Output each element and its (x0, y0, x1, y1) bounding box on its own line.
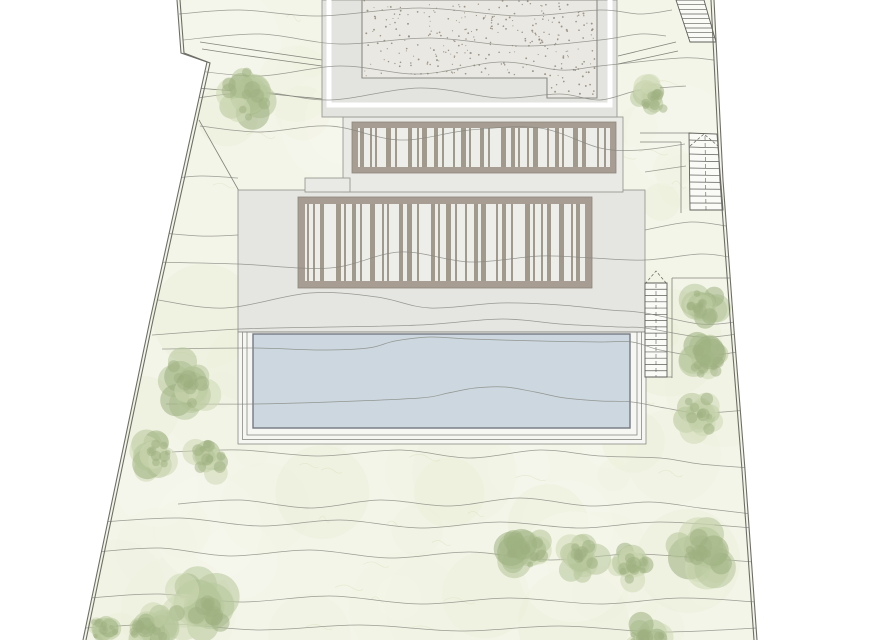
gravel-dot (377, 42, 379, 44)
gravel-dot (553, 17, 555, 19)
gravel-dot (433, 49, 435, 51)
ground-texture-blob (598, 459, 631, 492)
gravel-dot (461, 17, 462, 18)
gravel-dot (386, 19, 387, 20)
gravel-dot (399, 34, 401, 36)
tree-canopy-speckle (242, 90, 252, 100)
tree-canopy-speckle (242, 68, 252, 78)
gravel-dot (557, 38, 558, 39)
gravel-dot (427, 63, 429, 65)
gravel-dot (593, 90, 595, 92)
gravel-dot (504, 64, 506, 66)
tree-canopy-speckle (258, 98, 270, 110)
gravel-dot (471, 31, 472, 32)
gravel-dot (491, 18, 492, 19)
gravel-dot (541, 40, 543, 42)
terrace-step (305, 178, 350, 192)
gravel-dot (406, 48, 408, 50)
gravel-dot (454, 72, 455, 73)
gravel-dot (568, 39, 570, 41)
gravel-dot (518, 0, 519, 1)
gravel-dot (452, 30, 453, 31)
tree-canopy-speckle (625, 574, 634, 583)
gravel-dot (583, 13, 585, 15)
gravel-dot (434, 12, 435, 13)
pergola-slat (502, 204, 506, 281)
gravel-dot (592, 93, 594, 95)
tree-canopy-speckle (109, 625, 114, 630)
gravel-dot (447, 18, 449, 20)
gravel-dot (533, 60, 535, 62)
gravel-dot (407, 14, 408, 15)
gravel-dot (435, 54, 436, 55)
gravel-dot (464, 6, 466, 8)
gravel-dot (586, 71, 587, 72)
tree-canopy-speckle (586, 557, 597, 568)
gravel-dot (481, 71, 483, 73)
tree-canopy-speckle (96, 619, 101, 624)
gravel-dot (494, 16, 495, 17)
gravel-dot (388, 61, 389, 62)
pergola-slat (344, 204, 346, 281)
gravel-dot (554, 91, 556, 93)
tree-canopy-speckle (245, 114, 252, 121)
gravel-dot (578, 29, 580, 31)
tree-canopy-speckle (527, 562, 533, 568)
pergola-slat (582, 128, 586, 167)
gravel-dot (525, 40, 527, 42)
gravel-dot (535, 34, 537, 36)
gravel-dot (582, 37, 584, 39)
gravel-dot (544, 73, 546, 75)
gravel-dot (503, 25, 505, 27)
gravel-dot (391, 42, 393, 44)
gravel-dot (406, 50, 407, 51)
gravel-dot (561, 26, 563, 28)
gravel-dot (527, 0, 529, 2)
gravel-dot (522, 66, 523, 67)
tree-canopy-speckle (694, 290, 701, 297)
gravel-dot (400, 61, 402, 63)
gravel-dot (443, 51, 444, 52)
pergola-slat (417, 204, 419, 281)
gravel-dot (578, 49, 579, 50)
tree-canopy-speckle (699, 300, 705, 306)
gravel-dot (473, 36, 474, 37)
gravel-dot (583, 24, 585, 26)
gravel-dot (559, 35, 560, 36)
tree-canopy-speckle (631, 632, 636, 637)
gravel-dot (413, 56, 414, 57)
gravel-dot (514, 51, 515, 52)
gravel-dot (456, 52, 457, 53)
gravel-dot (453, 40, 454, 41)
gravel-dot (556, 84, 557, 85)
gravel-dot (424, 12, 425, 13)
gravel-dot (591, 29, 593, 31)
gravel-dot (483, 17, 485, 19)
gravel-dot (417, 11, 419, 13)
gravel-dot (567, 4, 569, 6)
gravel-dot (544, 46, 545, 47)
gravel-dot (543, 12, 545, 14)
pergola-slat (438, 204, 440, 281)
pergola-slat (382, 204, 384, 281)
tree-canopy-speckle (132, 620, 145, 633)
gravel-dot (562, 16, 564, 18)
pergola-slat (352, 204, 356, 281)
gravel-dot (485, 37, 487, 39)
tree-canopy-speckle (94, 634, 98, 638)
pergola-slat (453, 128, 455, 167)
gravel-dot (535, 23, 537, 25)
gravel-dot (532, 25, 534, 27)
gravel-dot (514, 74, 515, 75)
tree-canopy-blob (149, 605, 170, 626)
gravel-dot (457, 69, 458, 70)
gravel-dot (431, 30, 432, 31)
gravel-dot (558, 75, 559, 76)
gravel-dot (512, 20, 513, 21)
tree-canopy-speckle (239, 106, 247, 114)
gravel-dot (545, 4, 547, 6)
gravel-dot (399, 53, 400, 54)
tree-canopy-speckle (160, 460, 167, 467)
swimming-pool (238, 332, 646, 444)
gravel-dot (450, 54, 451, 55)
gravel-dot (505, 19, 507, 21)
pergola-slat (480, 128, 484, 167)
gravel-dot (429, 16, 431, 18)
gravel-dot (488, 74, 489, 75)
gravel-dot (464, 12, 465, 13)
tree-canopy-speckle (195, 462, 206, 473)
gravel-dot (532, 31, 533, 32)
gravel-dot (439, 32, 441, 34)
gravel-dot (566, 51, 567, 52)
gravel-dot (498, 52, 500, 54)
gravel-dot (380, 35, 382, 37)
gravel-dot (447, 37, 448, 38)
gravel-dot (594, 58, 596, 60)
ground-texture-blob (642, 183, 680, 221)
ground-texture-blob (276, 445, 370, 539)
gravel-dot (502, 0, 504, 2)
tree-canopy-speckle (697, 409, 706, 418)
gravel-dot (590, 63, 591, 64)
tree-canopy-speckle (168, 360, 180, 372)
gravel-dot (561, 68, 563, 70)
gravel-dot (461, 44, 462, 45)
pergola-slat (336, 204, 341, 281)
gravel-dot (509, 52, 510, 53)
gravel-dot (581, 63, 583, 65)
tree-canopy-speckle (694, 304, 707, 317)
gravel-dot (524, 38, 526, 40)
tree-canopy-speckle (696, 545, 707, 556)
gravel-dot (540, 5, 541, 6)
gravel-dot (563, 55, 565, 57)
pergola-slat (399, 204, 403, 281)
pergola-slat (533, 128, 538, 167)
gravel-dot (407, 23, 409, 25)
gravel-dot (506, 5, 508, 7)
tree-canopy-speckle (205, 609, 222, 626)
gravel-dot (562, 57, 563, 58)
pergola-slat (547, 128, 549, 167)
pergola-slat (407, 204, 412, 281)
tree-canopy-speckle (112, 629, 118, 635)
pergola-slat (488, 128, 490, 167)
pergola-slat (431, 204, 435, 281)
tree-canopy-speckle (187, 398, 197, 408)
gravel-dot (566, 29, 568, 31)
gravel-dot (465, 29, 466, 30)
pergola-slat (417, 128, 419, 167)
tree-canopy-speckle (692, 345, 704, 357)
gravel-dot (545, 55, 547, 57)
gravel-dot (552, 22, 553, 23)
gravel-dot (452, 64, 453, 65)
tree-canopy-speckle (630, 565, 640, 575)
gravel-dot (563, 81, 565, 83)
gravel-dot (539, 38, 541, 40)
tree-canopy-speckle (650, 100, 660, 110)
gravel-dot (399, 65, 401, 67)
gravel-dot (399, 14, 401, 16)
tree-canopy-speckle (574, 553, 584, 563)
gravel-dot (410, 65, 412, 67)
tree-canopy-speckle (152, 459, 160, 467)
gravel-dot (586, 23, 587, 24)
gravel-dot (591, 23, 593, 25)
gravel-dot (367, 10, 369, 12)
gravel-dot (365, 32, 367, 34)
gravel-dot (575, 66, 577, 68)
gravel-dot (562, 77, 564, 79)
pergola-slat (604, 128, 606, 167)
tree-canopy-speckle (203, 440, 211, 448)
gravel-dot (538, 54, 539, 55)
gravel-dot (522, 4, 523, 5)
gravel-dot (429, 26, 430, 27)
pergola-deck-lower (298, 197, 592, 288)
gravel-dot (490, 27, 492, 29)
architectural-site-plan (0, 0, 880, 640)
gravel-dot (567, 51, 568, 52)
gravel-dot (448, 50, 449, 51)
gravel-dot (532, 70, 534, 72)
gravel-dot (443, 45, 444, 46)
gravel-dot (531, 41, 533, 43)
gravel-dot (408, 35, 410, 37)
gravel-dot (588, 71, 590, 73)
gravel-dot (484, 67, 486, 69)
tree-canopy-speckle (642, 102, 649, 109)
gravel-dot (555, 43, 556, 44)
gravel-dot (380, 50, 381, 51)
pool-water (253, 334, 630, 428)
pergola-slat (496, 204, 498, 281)
gravel-dot (589, 84, 591, 86)
tree-canopy-speckle (640, 567, 646, 573)
gravel-dot (400, 10, 402, 12)
pergola-slat (408, 128, 412, 167)
gravel-dot (521, 31, 523, 33)
gravel-dot (436, 59, 438, 61)
pergola-slat (511, 204, 513, 281)
tree-canopy-speckle (214, 461, 226, 473)
gravel-dot (437, 65, 439, 67)
gravel-dot (492, 16, 494, 18)
gravel-dot (568, 90, 570, 92)
pergola-slat (320, 204, 324, 281)
pergola-deck-upper (352, 122, 616, 173)
pergola-slat (360, 204, 362, 281)
gravel-dot (428, 35, 429, 36)
gravel-dot (578, 83, 580, 85)
gravel-dot (567, 55, 568, 56)
tree-canopy-speckle (698, 363, 708, 373)
gravel-dot (548, 34, 549, 35)
gravel-dot (467, 32, 469, 34)
gravel-dot (579, 93, 581, 95)
gravel-dot (530, 42, 531, 43)
tree-canopy-speckle (659, 104, 668, 113)
gravel-dot (530, 3, 531, 4)
gravel-dot (509, 16, 511, 18)
gravel-dot (452, 73, 453, 74)
gravel-dot (436, 55, 438, 57)
gravel-dot (558, 21, 560, 23)
tree-canopy-speckle (508, 549, 516, 557)
gravel-dot (508, 72, 510, 74)
gravel-dot (485, 15, 486, 16)
gravel-dot (394, 13, 395, 14)
pergola-slat (455, 204, 457, 281)
gravel-dot (554, 65, 556, 67)
gravel-dot (551, 87, 553, 89)
gravel-dot (374, 18, 376, 20)
pergola-slat (573, 128, 578, 167)
pergola-slat (474, 204, 478, 281)
gravel-dot (501, 63, 502, 64)
pergola-slat (559, 204, 564, 281)
gravel-dot (404, 40, 405, 41)
gravel-dot (433, 10, 434, 11)
gravel-dot (583, 61, 585, 63)
gravel-dot (389, 24, 390, 25)
gravel-dot (547, 48, 548, 49)
tree-canopy-speckle (703, 423, 714, 434)
tree-canopy-speckle (101, 621, 107, 627)
tree-canopy-speckle (690, 529, 708, 547)
gravel-dot (578, 15, 579, 16)
ground-texture-blob (414, 458, 484, 528)
pergola-slat (465, 204, 467, 281)
gravel-dot (400, 7, 401, 8)
gravel-dot (488, 54, 490, 56)
gravel-dot (465, 45, 466, 46)
gravel-dot (583, 15, 584, 16)
gravel-dot (488, 9, 490, 11)
gravel-dot (582, 75, 584, 77)
gravel-dot (541, 41, 543, 43)
gravel-dot (534, 19, 535, 20)
gravel-dot (543, 16, 544, 17)
gravel-dot (540, 42, 542, 44)
gravel-dot (454, 55, 456, 57)
pergola-slat (386, 128, 391, 167)
gravel-dot (390, 6, 392, 8)
tree-canopy-speckle (222, 78, 235, 91)
gravel-dot (497, 32, 498, 33)
tree-canopy-speckle (686, 412, 697, 423)
pergola-slat (395, 128, 397, 167)
gravel-dot (558, 6, 560, 8)
tree-canopy-speckle (582, 540, 595, 553)
tree-canopy-speckle (530, 552, 539, 561)
gravel-dot (430, 48, 431, 49)
gravel-dot (458, 45, 460, 47)
pergola-slat (313, 204, 315, 281)
gravel-dot (381, 72, 382, 73)
tree-canopy-speckle (521, 546, 530, 555)
stair-pool-east (645, 271, 667, 377)
gravel-dot (366, 75, 367, 76)
tree-canopy-speckle (684, 552, 694, 562)
pergola-slat (518, 128, 520, 167)
tree-canopy-speckle (706, 414, 712, 420)
gravel-dot (469, 52, 471, 54)
gravel-dot (417, 44, 419, 46)
tree-canopy-speckle (203, 599, 215, 611)
gravel-dot (591, 34, 592, 35)
gravel-dot (395, 28, 397, 30)
gravel-dot (491, 22, 492, 23)
gravel-dot (531, 30, 533, 32)
gravel-dot (464, 52, 465, 53)
gravel-dot (452, 6, 453, 7)
gravel-dot (384, 59, 385, 60)
pergola-slat (370, 128, 372, 167)
gravel-dot (549, 75, 551, 77)
gravel-dot (418, 58, 420, 60)
gravel-dot (387, 6, 388, 7)
gravel-dot (372, 31, 373, 32)
gravel-dot (465, 73, 467, 75)
gravel-dot (375, 16, 376, 17)
gravel-dot (456, 20, 457, 21)
tree-canopy-speckle (639, 558, 648, 567)
gravel-dot (373, 29, 375, 31)
gravel-dot (430, 21, 431, 22)
gravel-dot (512, 25, 513, 26)
gravel-dot (559, 8, 561, 10)
pergola-slat (576, 204, 580, 281)
gravel-dot (410, 62, 412, 64)
gravel-dot (534, 32, 536, 34)
gravel-dot (394, 63, 395, 64)
gravel-dot (429, 4, 430, 5)
gravel-dot (429, 64, 431, 66)
gravel-dot (577, 15, 578, 16)
tree-canopy-speckle (701, 393, 714, 406)
gravel-dot (592, 50, 594, 52)
gravel-dot (474, 39, 475, 40)
gravel-dot (568, 56, 569, 57)
gravel-dot (491, 28, 493, 30)
